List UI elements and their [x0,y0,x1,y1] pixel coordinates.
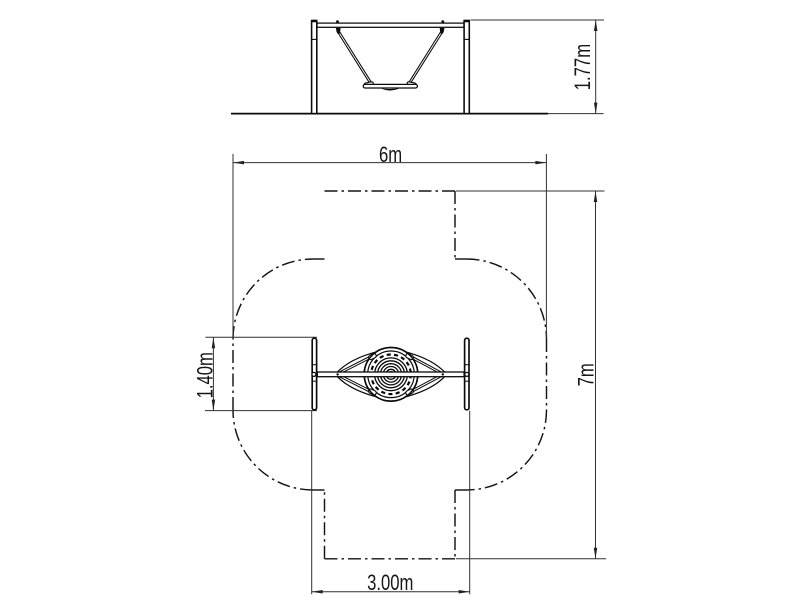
svg-text:7m: 7m [574,363,599,386]
svg-text:3.00m: 3.00m [367,571,413,596]
svg-text:6m: 6m [379,142,402,167]
svg-text:1.40m: 1.40m [193,352,218,398]
svg-text:1.77m: 1.77m [571,44,596,90]
